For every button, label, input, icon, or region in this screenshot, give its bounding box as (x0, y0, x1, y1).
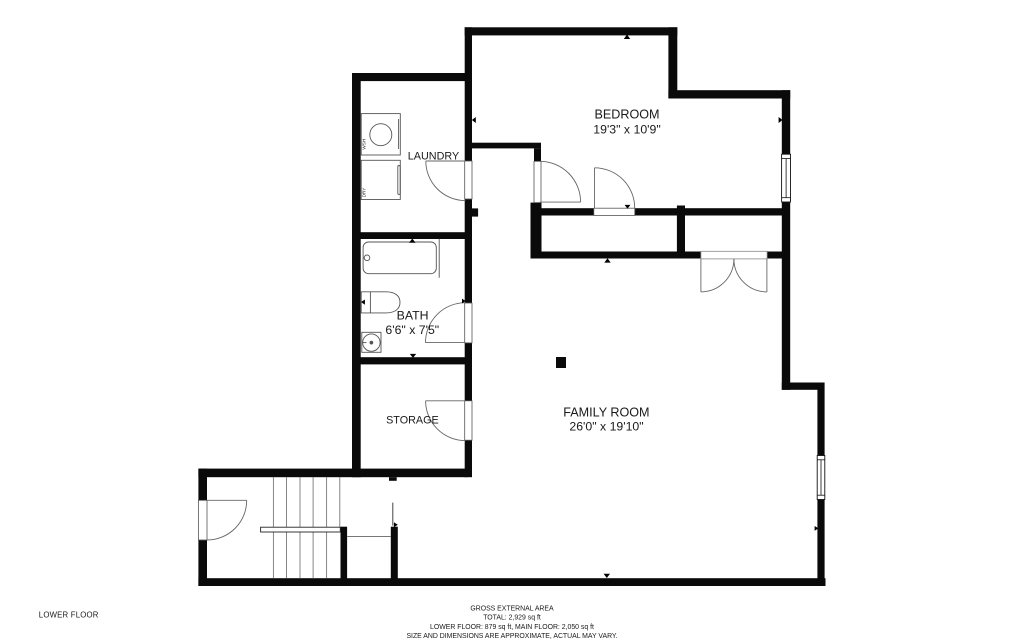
svg-text:19'3" x 10'9": 19'3" x 10'9" (593, 123, 660, 137)
svg-text:LOWER FLOOR: LOWER FLOOR (39, 610, 99, 619)
svg-text:WSH: WSH (362, 139, 367, 150)
svg-text:6'6" x 7'5": 6'6" x 7'5" (385, 323, 439, 337)
svg-text:FAMILY ROOM: FAMILY ROOM (563, 406, 649, 420)
svg-text:SIZE AND DIMENSIONS ARE APPROX: SIZE AND DIMENSIONS ARE APPROXIMATE, ACT… (406, 633, 617, 640)
svg-text:26'0" x 19'10": 26'0" x 19'10" (569, 419, 643, 433)
svg-text:GROSS EXTERNAL AREA: GROSS EXTERNAL AREA (470, 605, 554, 612)
svg-text:LOWER FLOOR: 879 sq ft, MAIN F: LOWER FLOOR: 879 sq ft, MAIN FLOOR: 2,05… (430, 624, 594, 631)
svg-text:STORAGE: STORAGE (386, 414, 439, 426)
svg-text:LAUNDRY: LAUNDRY (408, 151, 459, 163)
svg-text:TOTAL: 2,929 sq ft: TOTAL: 2,929 sq ft (483, 615, 541, 622)
svg-text:BEDROOM: BEDROOM (594, 108, 659, 122)
svg-text:BATH: BATH (397, 309, 429, 323)
svg-text:DRY: DRY (362, 188, 367, 198)
